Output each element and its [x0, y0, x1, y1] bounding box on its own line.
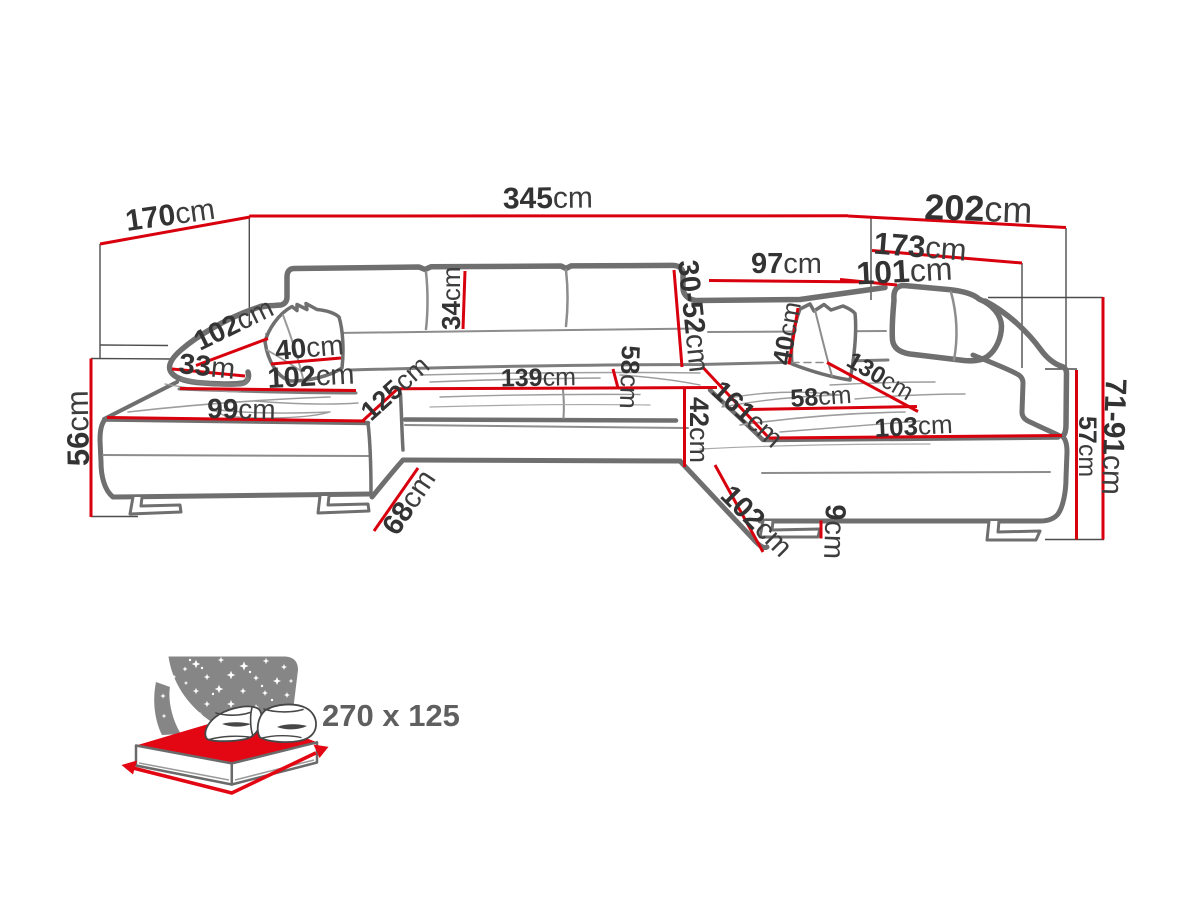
- svg-text:97cm: 97cm: [751, 248, 822, 280]
- svg-text:139cm: 139cm: [501, 363, 577, 392]
- svg-text:33m: 33m: [177, 348, 236, 386]
- svg-text:103cm: 103cm: [874, 409, 954, 443]
- svg-text:57cm: 57cm: [1073, 416, 1101, 477]
- svg-text:170cm: 170cm: [123, 193, 217, 238]
- svg-text:9cm: 9cm: [817, 504, 851, 560]
- svg-text:202cm: 202cm: [924, 186, 1033, 231]
- svg-text:161cm: 161cm: [706, 374, 789, 453]
- svg-text:102cm: 102cm: [267, 358, 356, 395]
- svg-text:42cm: 42cm: [684, 397, 714, 463]
- svg-text:99cm: 99cm: [207, 393, 276, 425]
- svg-text:270 x 125: 270 x 125: [322, 698, 460, 733]
- svg-text:345cm: 345cm: [503, 181, 593, 215]
- svg-text:34cm: 34cm: [436, 266, 466, 330]
- svg-text:56cm: 56cm: [60, 390, 96, 466]
- svg-text:68cm: 68cm: [376, 464, 442, 541]
- svg-text:30-52cm: 30-52cm: [671, 258, 715, 374]
- svg-text:58cm: 58cm: [614, 345, 646, 410]
- svg-text:58cm: 58cm: [789, 381, 852, 413]
- svg-text:101cm: 101cm: [855, 251, 953, 292]
